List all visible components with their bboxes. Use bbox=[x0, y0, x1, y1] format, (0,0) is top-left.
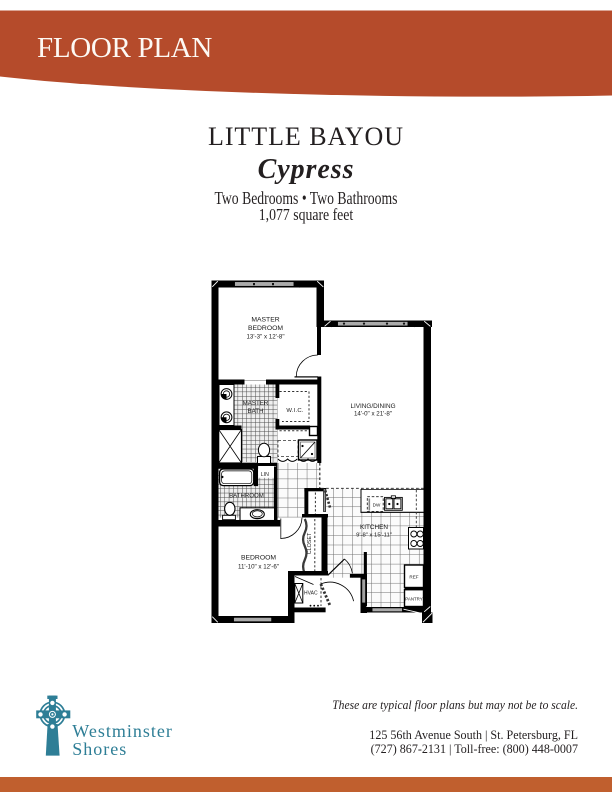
svg-text:KITCHEN: KITCHEN bbox=[360, 524, 388, 531]
svg-text:BEDROOM: BEDROOM bbox=[248, 325, 283, 332]
svg-text:BATH: BATH bbox=[247, 408, 263, 415]
svg-text:W.I.C.: W.I.C. bbox=[286, 408, 303, 414]
svg-text:MASTER: MASTER bbox=[243, 400, 269, 407]
svg-text:DW: DW bbox=[373, 502, 381, 507]
svg-text:PANTRY: PANTRY bbox=[405, 597, 422, 602]
svg-text:BATHROOM: BATHROOM bbox=[229, 492, 264, 499]
svg-text:14'-0" x 21'-8": 14'-0" x 21'-8" bbox=[354, 411, 392, 418]
svg-text:LIN: LIN bbox=[261, 472, 269, 478]
svg-text:BEDROOM: BEDROOM bbox=[241, 555, 276, 562]
svg-text:13'-3" x 12'-8": 13'-3" x 12'-8" bbox=[246, 334, 284, 341]
svg-text:9'-8" x 15'-11": 9'-8" x 15'-11" bbox=[356, 533, 392, 539]
svg-text:REF: REF bbox=[409, 575, 418, 580]
svg-text:MASTER: MASTER bbox=[251, 317, 279, 324]
svg-text:11'-10" x 12'-6": 11'-10" x 12'-6" bbox=[238, 564, 279, 571]
svg-text:CLOSET: CLOSET bbox=[307, 532, 313, 554]
svg-text:LIVING/DINING: LIVING/DINING bbox=[350, 403, 395, 410]
svg-text:HVAC: HVAC bbox=[304, 591, 318, 597]
